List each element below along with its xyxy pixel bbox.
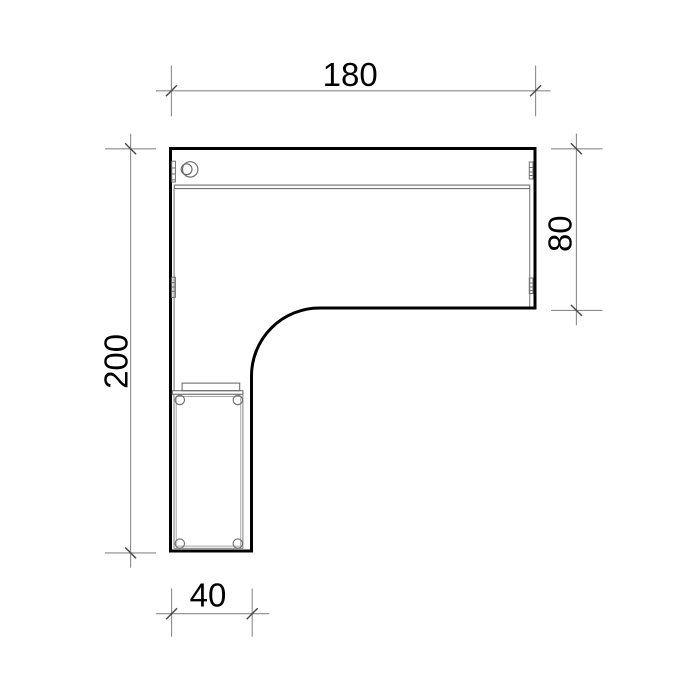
svg-text:80: 80 [542,215,579,252]
svg-text:200: 200 [97,334,134,389]
svg-text:40: 40 [190,577,227,614]
svg-text:180: 180 [323,56,378,93]
